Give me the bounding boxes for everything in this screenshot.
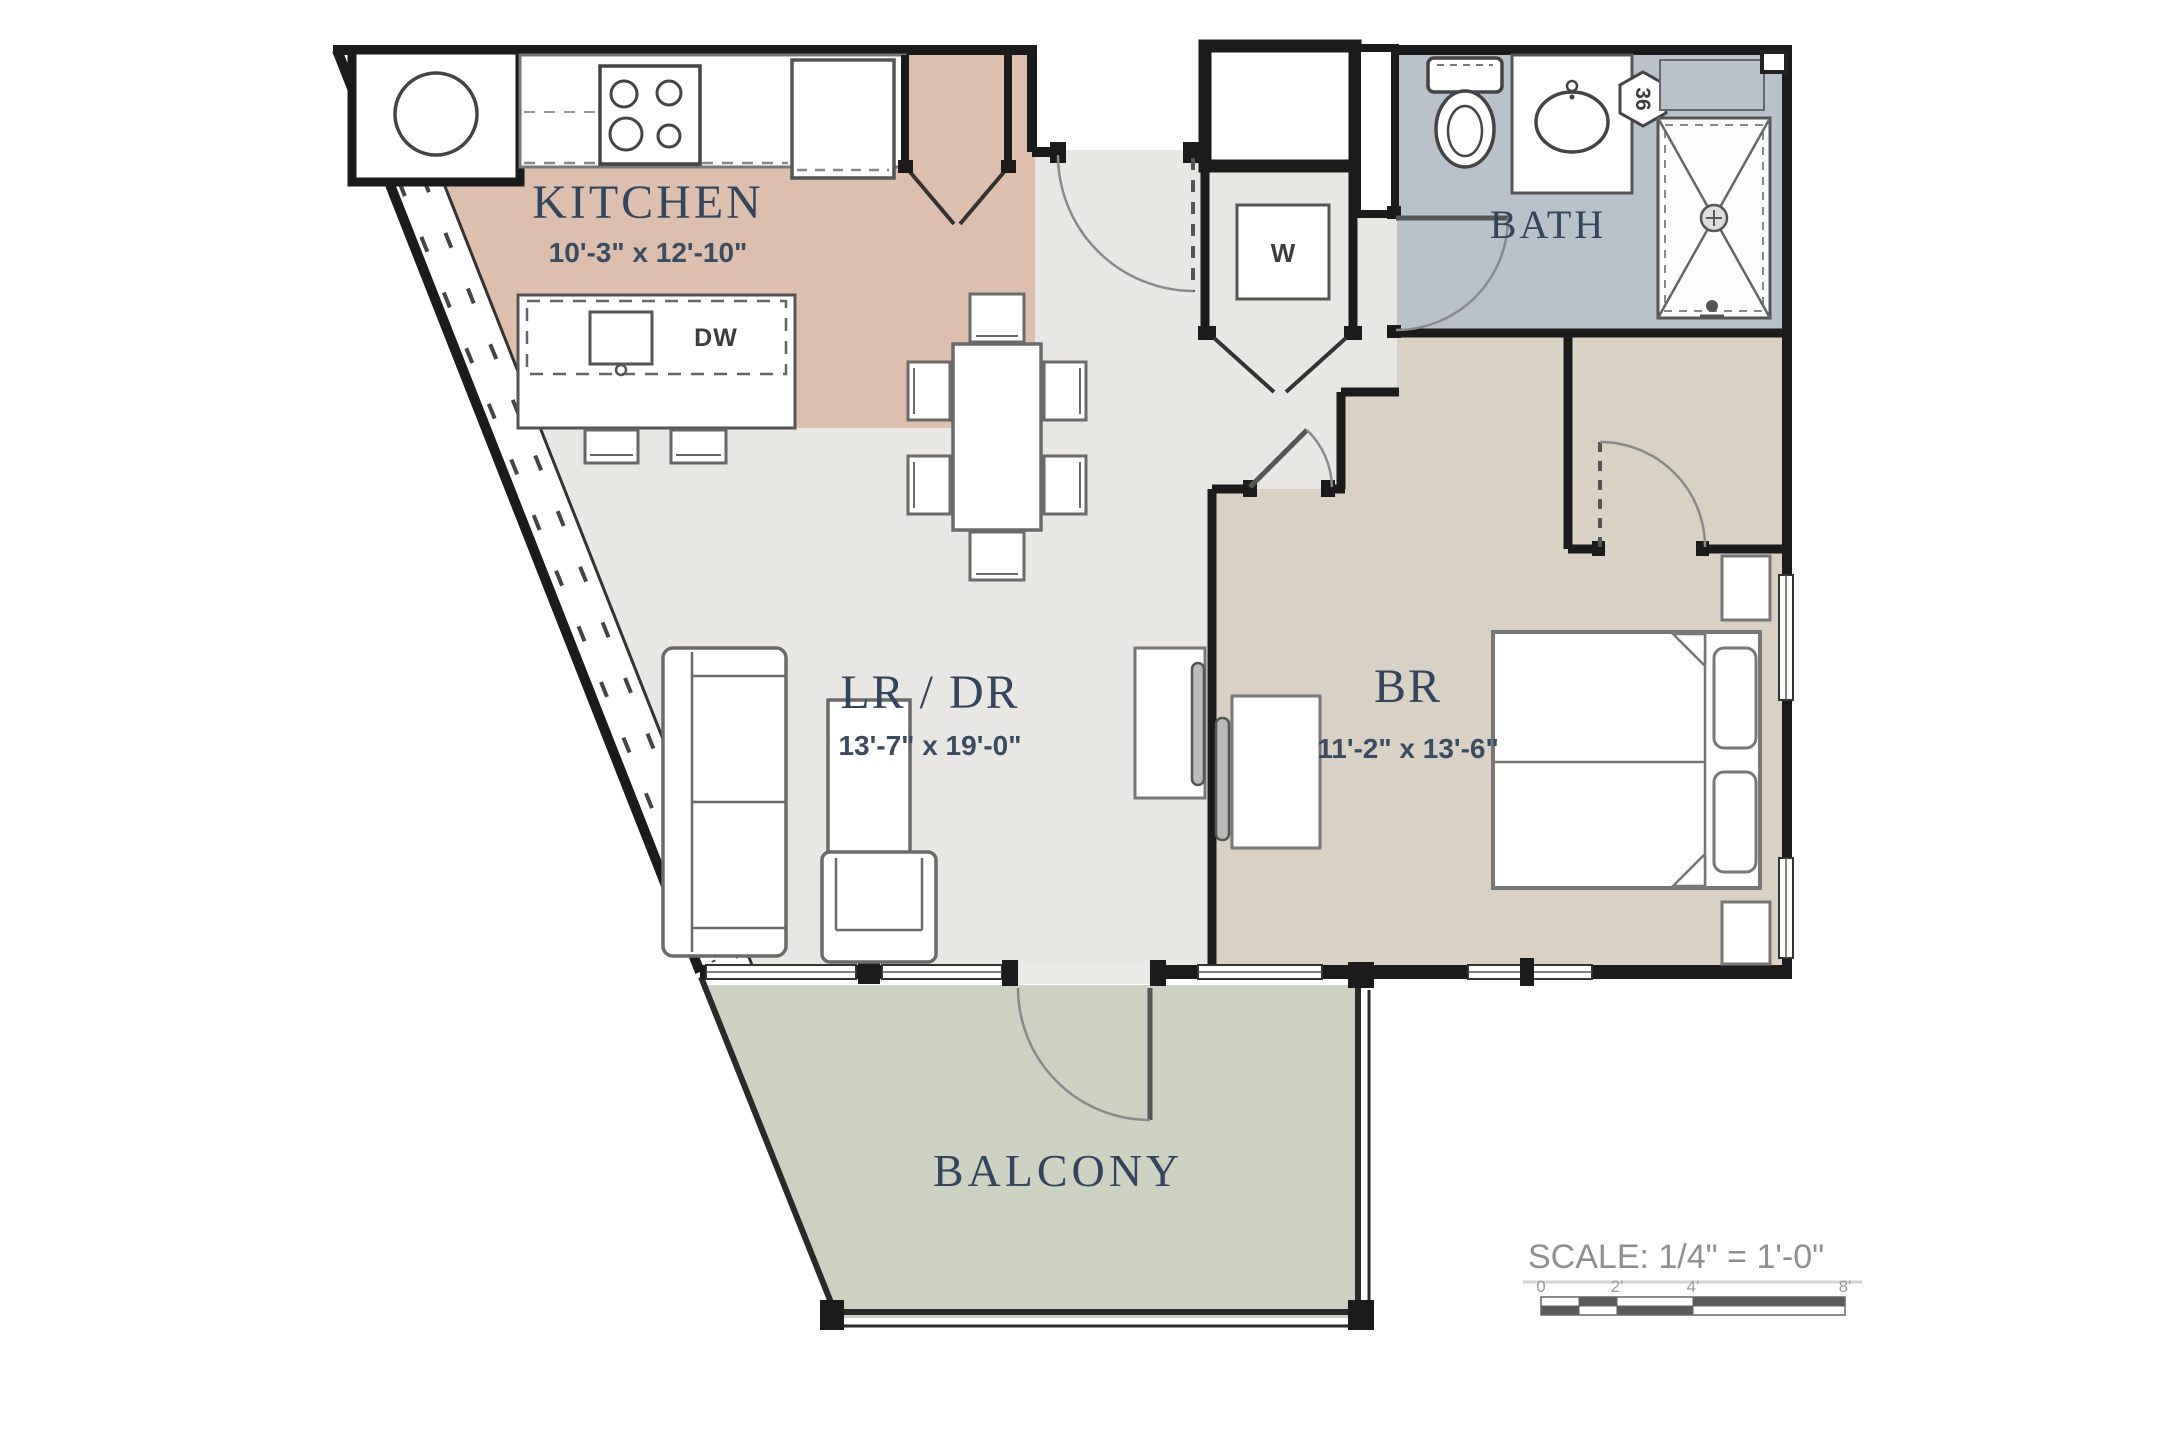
island-sink [590,312,652,364]
nightstand-1 [1722,556,1770,620]
mechanical-closet [1205,46,1355,166]
scale-bar: SCALE: 1/4" = 1'-0" 0 2' 4' 8' [1523,1238,1862,1315]
dining-chair [1044,362,1086,420]
sofa [663,648,786,956]
armchair [822,852,936,962]
floor-plan-svg: KITCHEN 10'-3" x 12'-10" BATH LR / DR 13… [0,0,2160,1440]
dining-chair [908,362,950,420]
window-right-wall-upper [1779,575,1793,700]
bath-door-jamb-bottom [1387,325,1401,338]
living-dining-label: LR / DR [840,666,1019,719]
balcony-corner-post-bottom [1348,1300,1374,1330]
washer-label: W [1271,238,1296,268]
scale-tick-4: 4' [1687,1277,1700,1296]
dining-chair [970,532,1024,580]
stove [600,66,700,164]
dining-chair [1044,456,1086,514]
window-right-wall-lower [1779,858,1793,958]
dining-table [953,344,1041,530]
vanity-size-label: 36 [1631,87,1654,110]
bar-stool-2 [671,430,726,463]
kitchen-island [518,295,795,428]
bathroom-sink [1536,92,1608,152]
bed [1493,632,1760,888]
br-closet-jamb-right [1696,541,1709,556]
bathroom-vanity [1512,55,1632,193]
bedroom-label: BR [1374,660,1442,713]
living-tv [1192,663,1204,785]
living-tv-console [1135,648,1205,798]
balcony-door-jamb-left [1002,960,1018,986]
bedroom-tv [1216,718,1229,840]
wall-chase-bath-left [1357,48,1395,214]
pillow-1 [1714,648,1756,748]
w-closet-jamb-left [1198,326,1216,340]
pillow-2 [1714,772,1756,872]
scale-tick-8: 8' [1839,1277,1852,1296]
kitchen-label: KITCHEN [532,176,764,229]
dining-chair [970,294,1024,342]
scale-tick-0: 0 [1536,1277,1545,1296]
floor-plan-page: KITCHEN 10'-3" x 12'-10" BATH LR / DR 13… [0,0,2160,1440]
refrigerator [792,60,894,178]
bedroom-dimensions: 11'-2" x 13'-6" [1317,733,1499,764]
dining-chair [908,456,950,514]
bar-stool-1 [585,430,638,463]
wall-corner-notch [1762,52,1786,72]
shower-head [1706,300,1718,312]
balcony-corner-post-left [820,1300,844,1330]
scale-title: SCALE: 1/4" = 1'-0" [1528,1238,1824,1276]
bath-label: BATH [1490,202,1606,247]
kitchen-dimensions: 10'-3" x 12'-10" [549,237,748,268]
balcony-door-opening [1016,962,1152,984]
window-bottom-bedroom-left [1198,965,1322,979]
balcony-label: BALCONY [933,1145,1183,1196]
bedroom-dresser [1216,696,1320,848]
nightstand-2 [1722,902,1770,964]
w-closet-jamb-right [1344,326,1362,340]
scale-tick-2: 2' [1611,1277,1624,1296]
living-dining-dimensions: 13'-7" x 19'-0" [838,730,1021,761]
balcony-door-jamb-right [1150,960,1166,986]
water-heater [395,73,477,155]
dishwasher-label: DW [694,324,738,352]
shower [1658,118,1770,318]
bath-niche-shelf [1660,60,1764,110]
